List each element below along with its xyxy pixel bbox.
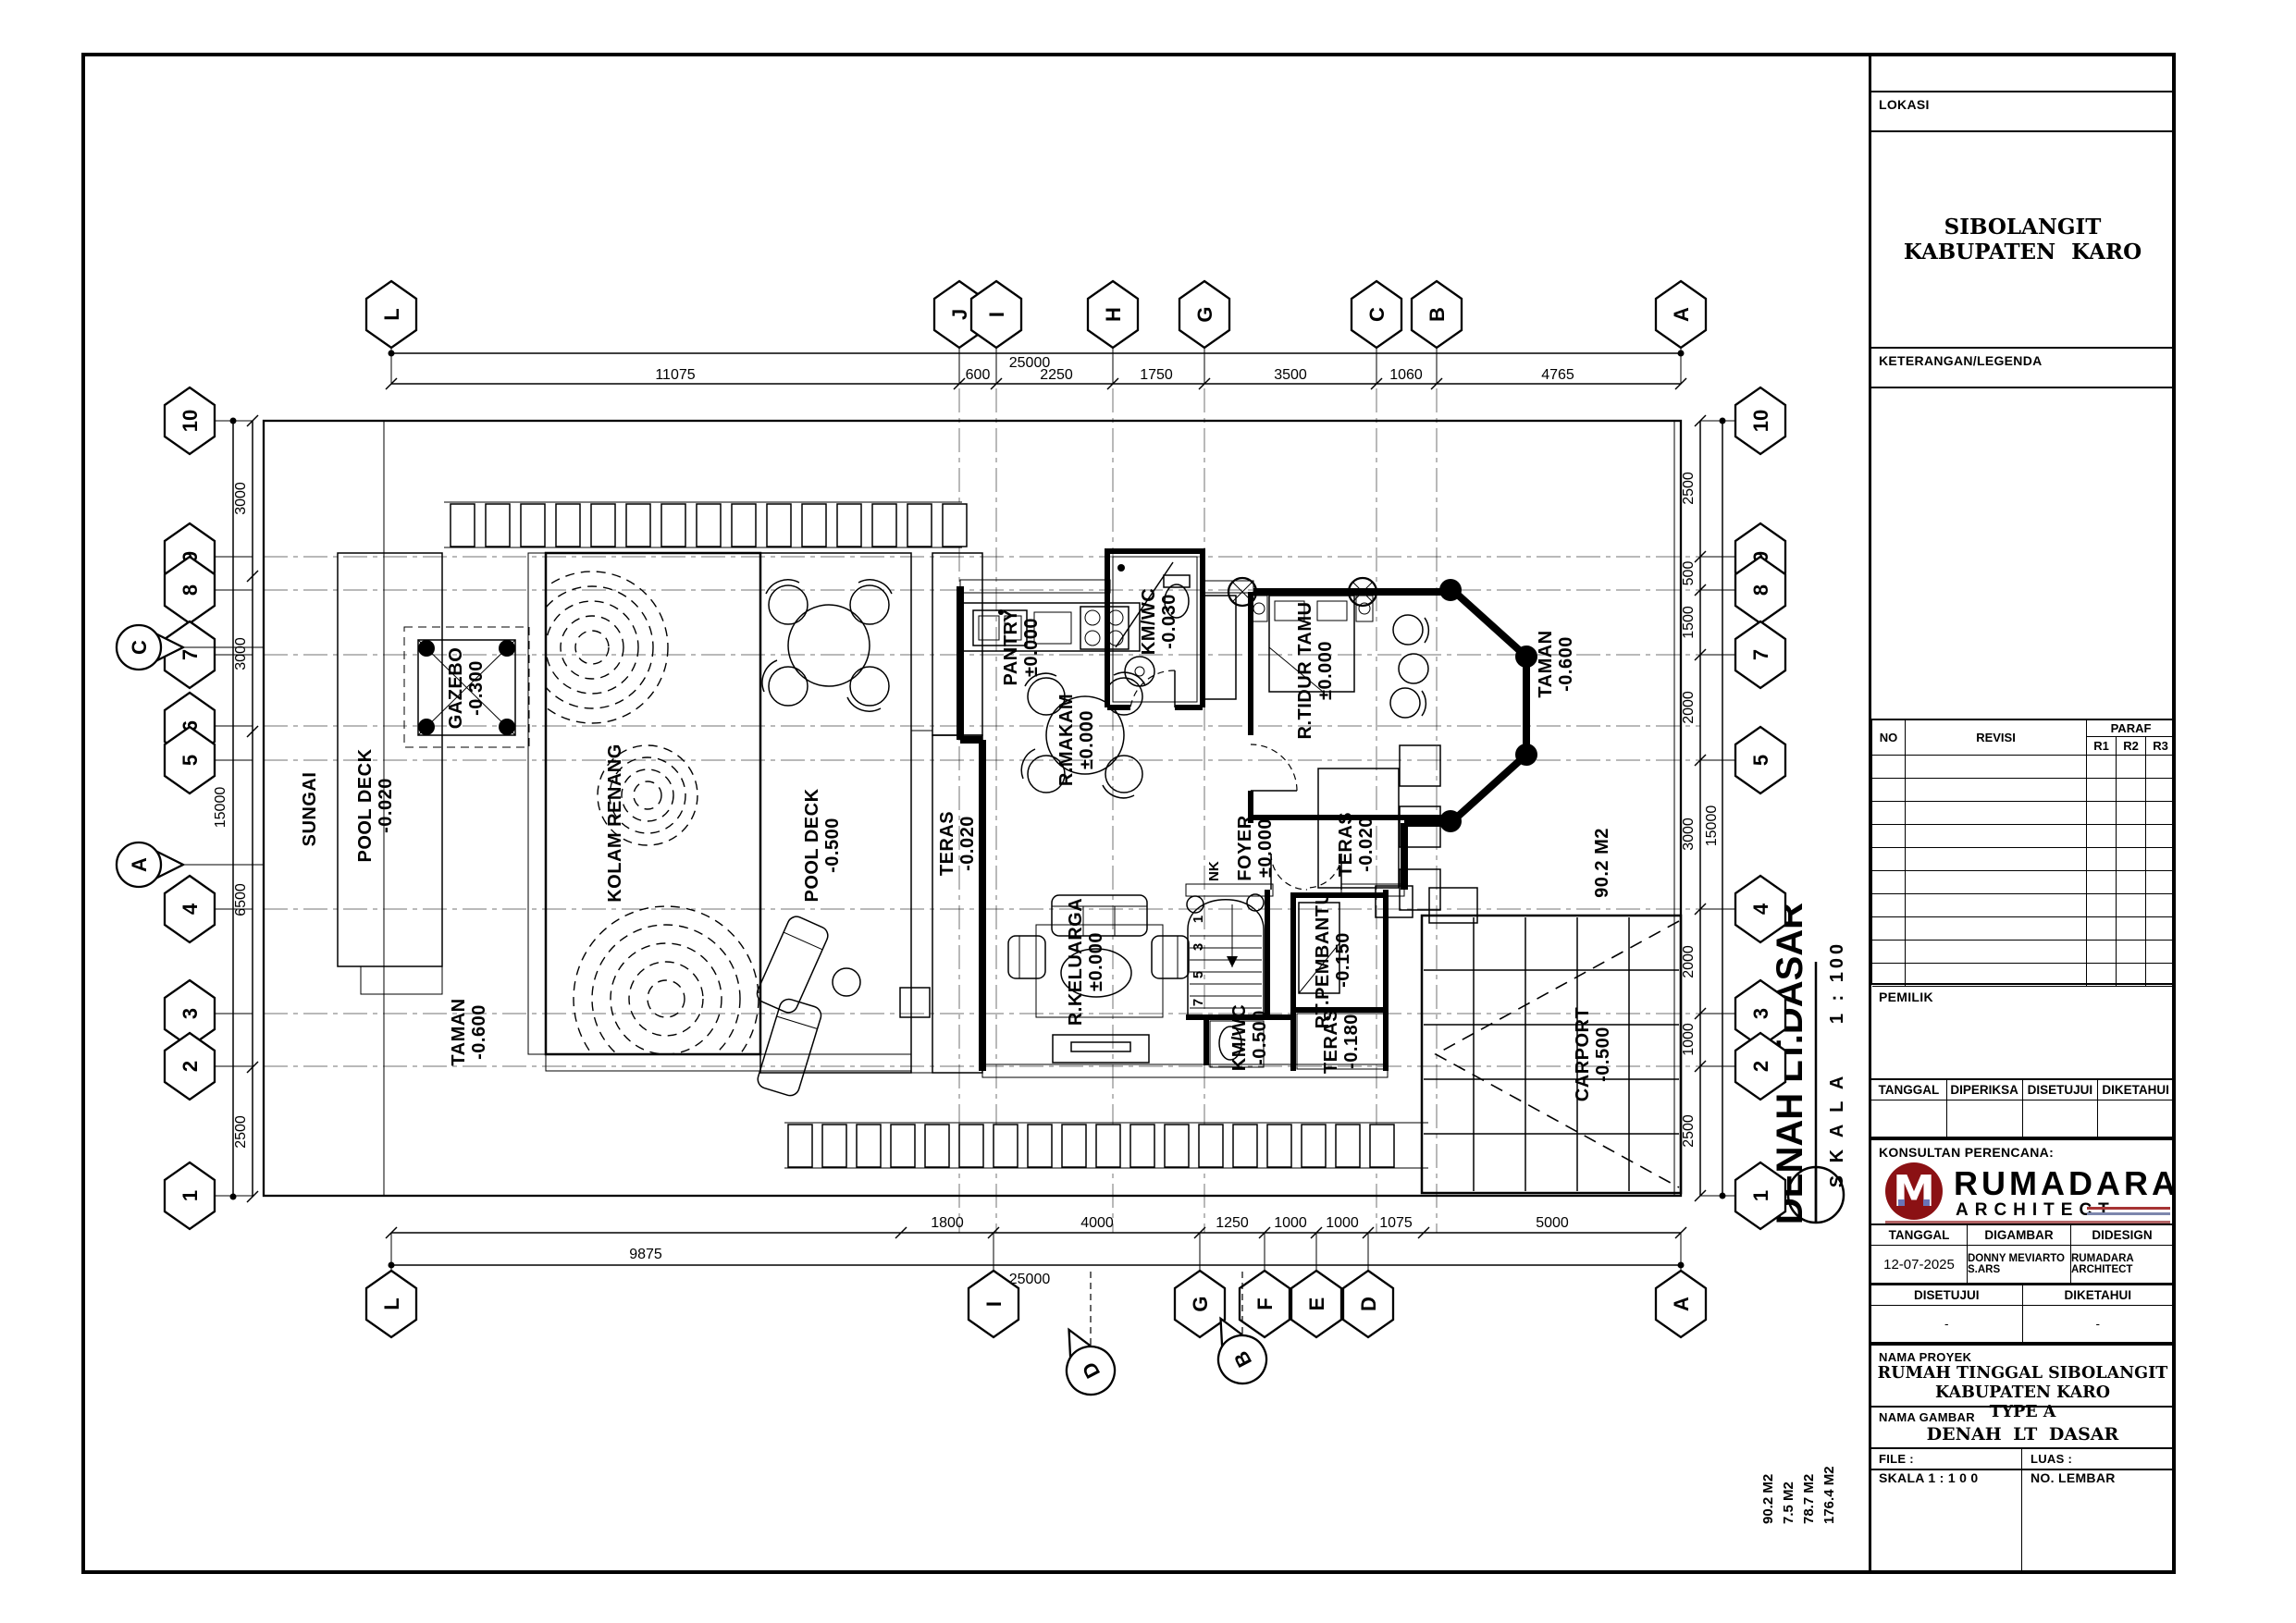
room-level: -0.020 xyxy=(376,778,396,833)
room-name: POOL DECK xyxy=(355,748,376,862)
room-label-pantry: PANTRY±0.000 xyxy=(1001,609,1042,685)
house-walls xyxy=(960,551,1537,1077)
drawing-scale-value: 1 : 100 xyxy=(1827,941,1847,1024)
room-name: TERAS xyxy=(937,811,957,876)
room-level: -0.500 xyxy=(1593,1027,1613,1082)
dim-label: 1000 xyxy=(1326,1215,1359,1231)
dim-label: 11075 xyxy=(655,367,695,383)
dim-label: 3500 xyxy=(1274,367,1307,383)
room-label-teras: TERAS-0.180 xyxy=(1321,1009,1362,1074)
bedroom-furniture xyxy=(1251,596,1428,718)
carport-area xyxy=(1422,916,1681,1193)
stair-number: 7 xyxy=(1191,999,1206,1006)
room-level: -0.500 xyxy=(1250,1010,1270,1065)
fence-post xyxy=(822,1125,846,1167)
room-label-taman: TAMAN-0.600 xyxy=(1536,630,1576,697)
fence-post xyxy=(943,504,967,547)
wardrobe-closet xyxy=(1203,596,1236,699)
room-label-km-wc: KM/WC-0.500 xyxy=(1229,1004,1270,1071)
grid-bubble-label: G xyxy=(1193,306,1216,322)
grid-bubble-label: 3 xyxy=(179,1008,202,1019)
fence-post xyxy=(1370,1125,1394,1167)
dim-label: 2000 xyxy=(1681,691,1697,724)
grid-bubble-label: I xyxy=(985,312,1008,317)
dim-label: 2000 xyxy=(1681,945,1697,978)
pool-deck-left-steps xyxy=(361,966,442,994)
room-name: TERAS xyxy=(1336,812,1356,877)
room-label-teras: TERAS-0.020 xyxy=(1336,812,1376,877)
room-name: CARPORT xyxy=(1573,1007,1593,1101)
floor-plan-svg: DENAH LT.DASAR S K A L A 1 : 100 25000 9… xyxy=(0,0,2296,1623)
fence-post xyxy=(1302,1125,1326,1167)
grid-bubble-label: G xyxy=(1189,1296,1212,1311)
dim-label: 2500 xyxy=(1681,1114,1697,1148)
grid-bubble-label: 2 xyxy=(1749,1061,1772,1072)
room-level: ±0.000 xyxy=(1086,932,1106,991)
fence-post xyxy=(959,1125,983,1167)
room-level: -0.600 xyxy=(1556,636,1576,692)
fence-post xyxy=(767,504,791,547)
area-summary-item: 90.2 M2 xyxy=(1760,1474,1776,1524)
grid-bubble-label: 5 xyxy=(1749,755,1772,766)
dim-label: 1500 xyxy=(1681,606,1697,639)
room-label-r-tidur-tamu: R.TIDUR TAMU±0.000 xyxy=(1295,602,1336,740)
room-level: -0.020 xyxy=(957,816,978,871)
dim-label: 1060 xyxy=(1389,367,1423,383)
fence-post xyxy=(925,1125,949,1167)
room-level: -0.300 xyxy=(466,660,487,716)
fence-post xyxy=(907,504,932,547)
fence-post xyxy=(857,1125,881,1167)
drawing-sheet: LOKASI SIBOLANGIT KABUPATEN KARO KETERAN… xyxy=(0,0,2296,1623)
room-name: KM/WC xyxy=(1139,588,1159,655)
deck-edge-tiles xyxy=(911,731,932,1073)
room-label-sungai: SUNGAI xyxy=(300,772,320,847)
section-label: A xyxy=(128,857,151,872)
fence-post xyxy=(891,1125,915,1167)
grid-bubble-label: 5 xyxy=(179,755,202,766)
room-name: R.MAKAM xyxy=(1056,694,1077,786)
grid-bubble-label: 3 xyxy=(1749,1008,1772,1019)
area-summary-item: 7.5 M2 xyxy=(1781,1482,1796,1524)
dim-dot xyxy=(230,1194,237,1200)
fence-post xyxy=(1028,1125,1052,1167)
room-level: -0.150 xyxy=(1333,932,1353,988)
room-name: TERAS xyxy=(1321,1009,1341,1074)
room-level: -0.180 xyxy=(1341,1014,1362,1069)
dim-label: 2500 xyxy=(1681,472,1697,505)
grid-bubble-label: 10 xyxy=(179,410,202,432)
wall-hatch-entry1 xyxy=(1186,884,1273,896)
fence-post xyxy=(1062,1125,1086,1167)
dim-right-total: 15000 xyxy=(1704,805,1720,847)
grid-bubble-label: 4 xyxy=(1749,903,1772,915)
grid-bubble-label: 4 xyxy=(179,903,202,915)
dim-label: 500 xyxy=(1681,561,1697,586)
room-label-foyer: FOYER±0.000 xyxy=(1235,815,1276,880)
room-name: TAMAN xyxy=(449,998,469,1065)
room-label-kolam-renang: KOLAM RENANG xyxy=(605,744,625,903)
room-name: R.TIDUR TAMU xyxy=(1295,602,1315,740)
grid-bubble-label: 1 xyxy=(179,1190,202,1201)
room-level: -0.030 xyxy=(1159,594,1179,649)
stair-number: 3 xyxy=(1191,943,1206,951)
fence-post xyxy=(872,504,896,547)
section-label: C xyxy=(128,640,151,655)
fence-post xyxy=(1233,1125,1257,1167)
fence-post xyxy=(788,1125,812,1167)
grid-bubble-label: C xyxy=(1365,307,1389,322)
teras-middle-area xyxy=(932,735,982,1073)
fence-post xyxy=(591,504,615,547)
dim-label: 2250 xyxy=(1040,367,1073,383)
room-label-taman: TAMAN-0.600 xyxy=(449,998,489,1065)
dim-label: 2500 xyxy=(233,1115,249,1149)
grid-bubble-label: F xyxy=(1253,1297,1277,1309)
fence-post xyxy=(1130,1125,1154,1167)
grid-bubble-label: 10 xyxy=(1749,410,1772,432)
room-label-km-wc: KM/WC-0.030 xyxy=(1139,588,1179,655)
grid-bubble-label: B xyxy=(1426,307,1449,322)
dim-label: 3000 xyxy=(1681,818,1697,851)
drawing-scale-label: S K A L A xyxy=(1827,1073,1847,1188)
fence-post xyxy=(994,1125,1018,1167)
room-level: -0.600 xyxy=(469,1004,489,1060)
fence-post xyxy=(1336,1125,1360,1167)
pool-deck-center xyxy=(760,553,911,1073)
room-label-pool-deck: POOL DECK-0.500 xyxy=(802,788,843,902)
staircase xyxy=(1187,894,1264,1015)
grid-bubble-label: L xyxy=(380,308,403,320)
room-name: RT.PEMBANTU xyxy=(1313,891,1333,1029)
grid-bubble-label: D xyxy=(1357,1297,1380,1311)
room-name: KM/WC xyxy=(1229,1004,1250,1071)
grid-bubble-label: 7 xyxy=(179,649,202,660)
dim-label: 600 xyxy=(966,367,991,383)
swimming-pool xyxy=(516,553,911,1091)
section-mark-D: D xyxy=(1048,1319,1124,1404)
grid-bubble-label: A xyxy=(1670,1297,1693,1311)
room-name: KOLAM RENANG xyxy=(605,744,625,903)
deck-round-table xyxy=(762,580,892,711)
grid-bubble-label: E xyxy=(1305,1297,1328,1311)
dim-label: 5000 xyxy=(1536,1215,1569,1231)
fence-post xyxy=(626,504,650,547)
dim-bottom-9875: 9875 xyxy=(629,1247,662,1262)
room-label-90-2-m2: 90.2 M2 xyxy=(1592,828,1612,898)
fence-post xyxy=(1096,1125,1120,1167)
room-name: SUNGAI xyxy=(300,772,320,847)
grid-bubble-label: I xyxy=(982,1301,1006,1307)
dim-label: 6500 xyxy=(233,883,249,916)
area-summary-item: 78.7 M2 xyxy=(1801,1474,1817,1524)
grid-bubble-label: 1 xyxy=(1749,1190,1772,1201)
room-level: ±0.000 xyxy=(1255,818,1276,878)
grid-bubble-label: 7 xyxy=(1749,649,1772,660)
grid-bubble-label: 8 xyxy=(179,584,202,596)
grid-bubble-label: A xyxy=(1670,307,1693,322)
room-name: GAZEBO xyxy=(446,647,466,730)
dim-label: 1250 xyxy=(1216,1215,1249,1231)
dim-label: 1800 xyxy=(931,1215,964,1231)
fence-post xyxy=(661,504,685,547)
room-name: FOYER xyxy=(1235,815,1255,880)
room-level: ±0.000 xyxy=(1077,710,1097,769)
dim-label: 1000 xyxy=(1274,1215,1307,1231)
area-summary-item: 176.4 M2 xyxy=(1821,1466,1837,1524)
stair-number: 1 xyxy=(1191,916,1206,923)
fence-post xyxy=(486,504,510,547)
lounge-chairs xyxy=(754,914,860,1098)
dim-label: 1750 xyxy=(1140,367,1173,383)
room-label-r-keluarga: R.KELUARGA±0.000 xyxy=(1066,898,1106,1026)
fence-post xyxy=(802,504,826,547)
room-name: POOL DECK xyxy=(802,788,822,902)
room-label-teras: TERAS-0.020 xyxy=(937,811,978,876)
fence-post xyxy=(697,504,721,547)
room-level: ±0.000 xyxy=(1315,641,1336,700)
fence-post xyxy=(837,504,861,547)
dim-label: 1000 xyxy=(1681,1023,1697,1056)
room-name: R.KELUARGA xyxy=(1066,898,1086,1026)
room-label-pool-deck: POOL DECK-0.020 xyxy=(355,748,396,862)
stair-number: 5 xyxy=(1191,971,1206,978)
dim-label: 3000 xyxy=(233,482,249,515)
room-level: -0.500 xyxy=(822,818,843,873)
grid-bubble-label: 8 xyxy=(1749,584,1772,596)
stair-nk-label: NK xyxy=(1206,861,1222,881)
room-label-gazebo: GAZEBO-0.300 xyxy=(446,647,487,730)
grid-bubble-label: H xyxy=(1102,307,1125,322)
dim-label: 3000 xyxy=(233,637,249,670)
dim-label: 4000 xyxy=(1080,1215,1114,1231)
dim-left-total: 15000 xyxy=(213,787,228,829)
room-label-r-makam: R.MAKAM±0.000 xyxy=(1056,694,1097,786)
planter-box xyxy=(900,988,930,1017)
dim-label: 1075 xyxy=(1379,1215,1413,1231)
grid-bubble-label: L xyxy=(380,1297,403,1309)
room-name: TAMAN xyxy=(1536,630,1556,697)
fence-post xyxy=(1165,1125,1189,1167)
fence-post xyxy=(521,504,545,547)
fence-post xyxy=(1267,1125,1291,1167)
fence-post xyxy=(1199,1125,1223,1167)
grid-bubble-label: 2 xyxy=(179,1061,202,1072)
room-label-carport: CARPORT-0.500 xyxy=(1573,1007,1613,1101)
room-level: -0.020 xyxy=(1356,817,1376,872)
room-name: 90.2 M2 xyxy=(1592,828,1612,898)
room-name: PANTRY xyxy=(1001,609,1021,685)
dim-label: 4765 xyxy=(1541,367,1574,383)
fence-post xyxy=(732,504,756,547)
fence-post xyxy=(451,504,475,547)
grid-bubble-label: J xyxy=(948,309,971,320)
room-level: ±0.000 xyxy=(1021,618,1042,677)
fence-post xyxy=(556,504,580,547)
